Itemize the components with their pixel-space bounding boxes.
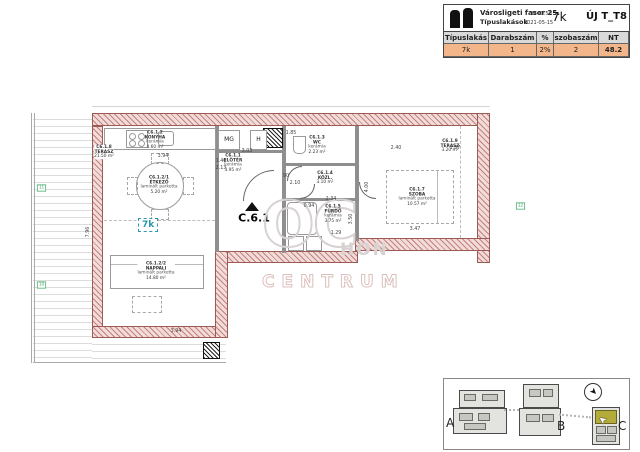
washing-machine: MG xyxy=(218,130,240,150)
watermark-fragment: HON xyxy=(340,240,389,260)
title-block: Városligeti fasor 25. M=1:50 Típuslakáso… xyxy=(443,4,630,58)
dimension: 3.94 xyxy=(158,153,169,159)
cell-tipuslakas: 7k xyxy=(444,44,489,57)
partition-wc-hall xyxy=(282,163,359,166)
dimension: 3.03 xyxy=(242,148,253,154)
dimension: 1.29 xyxy=(331,230,342,236)
roof-detail xyxy=(464,394,476,401)
dimension: 1.40 xyxy=(216,158,227,164)
dimension-line-top xyxy=(92,106,490,107)
dimension: 3.50 xyxy=(348,214,354,225)
dimension: 7.96 xyxy=(85,227,91,238)
burner-icon xyxy=(129,140,136,147)
dimension: 3.94 xyxy=(171,328,182,334)
building-b-label: B xyxy=(557,419,565,433)
dimension: 3.47 xyxy=(410,226,421,232)
coffee-table xyxy=(132,296,162,313)
compass-icon: ➤ xyxy=(584,383,602,401)
roof-detail xyxy=(607,426,617,434)
drawing-date: 2021-05-15 xyxy=(524,20,553,26)
dimension: 4.00 xyxy=(364,182,370,193)
wall-top xyxy=(92,113,490,126)
cell-percent: 2% xyxy=(537,44,554,57)
room-label-terasz: C6.1.8 TERASZ 21.50 m² xyxy=(94,145,114,159)
terrace-edge-line xyxy=(31,113,32,363)
room-label-kozl: C6.1.4 KÖZL. 3.10 m² xyxy=(317,171,334,185)
roof-detail xyxy=(543,389,553,397)
roof-detail xyxy=(459,413,473,421)
dimension: 2.10 xyxy=(290,180,301,186)
fridge: H xyxy=(250,130,267,150)
cell-szobaszam: 2 xyxy=(554,44,599,57)
roof-detail xyxy=(596,426,606,434)
dimension: 0.94 xyxy=(304,203,315,209)
chair xyxy=(127,177,138,195)
pillar-terrace xyxy=(203,342,220,359)
building-b-lower xyxy=(519,408,561,436)
room-label-konyha: C6.1.2 KONYHA kerámia 4.60 m² xyxy=(145,131,166,150)
drawing-scale: M=1:50 xyxy=(532,11,552,17)
terrace-edge-line2 xyxy=(34,113,35,363)
grid-marker: 10 xyxy=(37,282,46,289)
chair xyxy=(183,177,194,195)
building-a-upper xyxy=(459,390,505,408)
building-a-label: A xyxy=(446,416,454,430)
col-header-szobaszam: szobaszám xyxy=(554,32,599,44)
dimension: 1.87 xyxy=(450,145,461,151)
type-summary-table: Típuslakás Darabszám % szobaszám NT 7k 1… xyxy=(444,31,629,58)
cell-darabszam: 1 xyxy=(489,44,537,57)
dimension: 1.85 xyxy=(286,130,297,136)
room-label-wc: C6.1.3 WC kerámia 2.23 m² xyxy=(308,136,325,155)
room-label-etkezo: C6.1.2/1 ÉTKEZŐ laminált parketta 5.20 m… xyxy=(140,176,177,195)
attic-line-v xyxy=(460,126,461,238)
floor-plan: MG H C.6.1 7k xyxy=(0,90,640,380)
terrace-edge-bottom xyxy=(33,362,226,363)
grid-marker: 11 xyxy=(37,185,46,192)
fridge-label: H xyxy=(256,136,261,143)
roof-detail xyxy=(478,413,490,421)
roof-detail xyxy=(526,414,540,422)
logo-tower-right xyxy=(463,8,473,28)
wall-bottom-living xyxy=(92,326,228,338)
unit-type-code: 7k xyxy=(552,10,567,24)
developer-logo-icon xyxy=(448,8,476,28)
watermark-centrum: CENTRUM xyxy=(262,272,405,292)
burner-icon xyxy=(129,133,136,140)
logo-tower-left xyxy=(450,10,460,28)
roof-detail xyxy=(482,394,498,401)
roof-detail xyxy=(542,414,554,422)
col-header-tipuslakas: Típuslakás xyxy=(444,32,489,44)
dimension: 2.34 xyxy=(326,196,337,202)
building-a-lower xyxy=(453,408,507,434)
col-header-nt: NT xyxy=(599,32,629,44)
room-label-furdo: C6.1.5 FÜRDŐ kerámia 3.75 m² xyxy=(324,205,341,224)
terrace-decking-left xyxy=(33,113,92,363)
dimension: 2.40 xyxy=(391,145,402,151)
wall-living-right xyxy=(215,251,228,338)
site-plan: ➤ A B ➤ xyxy=(443,378,630,450)
attic-line-h xyxy=(104,220,215,221)
building-c: ➤ xyxy=(592,407,620,445)
toilet xyxy=(293,136,306,154)
washing-machine-label: MG xyxy=(224,136,234,143)
room-label-szoba: C6.1.7 SZOBA laminált parketta 10.57 m² xyxy=(398,188,435,207)
entrance-arrow-icon xyxy=(245,202,259,211)
col-header-percent: % xyxy=(537,32,554,44)
cell-nt: 48.2 xyxy=(599,44,629,57)
unit-type-badge: 7k xyxy=(138,218,158,232)
grid-marker: 12 xyxy=(516,203,525,210)
roof-detail xyxy=(464,423,486,430)
col-header-darabszam: Darabszám xyxy=(489,32,537,44)
dimension: 2.13 xyxy=(216,165,227,171)
bed-pillow-line xyxy=(437,171,438,223)
room-label-eloter: C6.1.1 ELŐTÉR kerámia 3.95 m² xyxy=(224,154,243,173)
site-path xyxy=(559,414,591,419)
drawing-subtitle: Típuslakások xyxy=(480,18,528,26)
room-label-nappali: C6.1.2/2 NAPPALI laminált parketta 14.80… xyxy=(137,262,174,281)
building-b-upper xyxy=(523,384,559,408)
dimension: 90 xyxy=(283,173,289,179)
roof-detail xyxy=(596,435,616,442)
building-c-label: C xyxy=(618,419,626,433)
roof-detail xyxy=(529,389,541,397)
floorplan-sheet: Városligeti fasor 25. M=1:50 Típuslakáso… xyxy=(0,0,640,452)
drawing-id: ÚJ T_T8 xyxy=(586,11,627,22)
